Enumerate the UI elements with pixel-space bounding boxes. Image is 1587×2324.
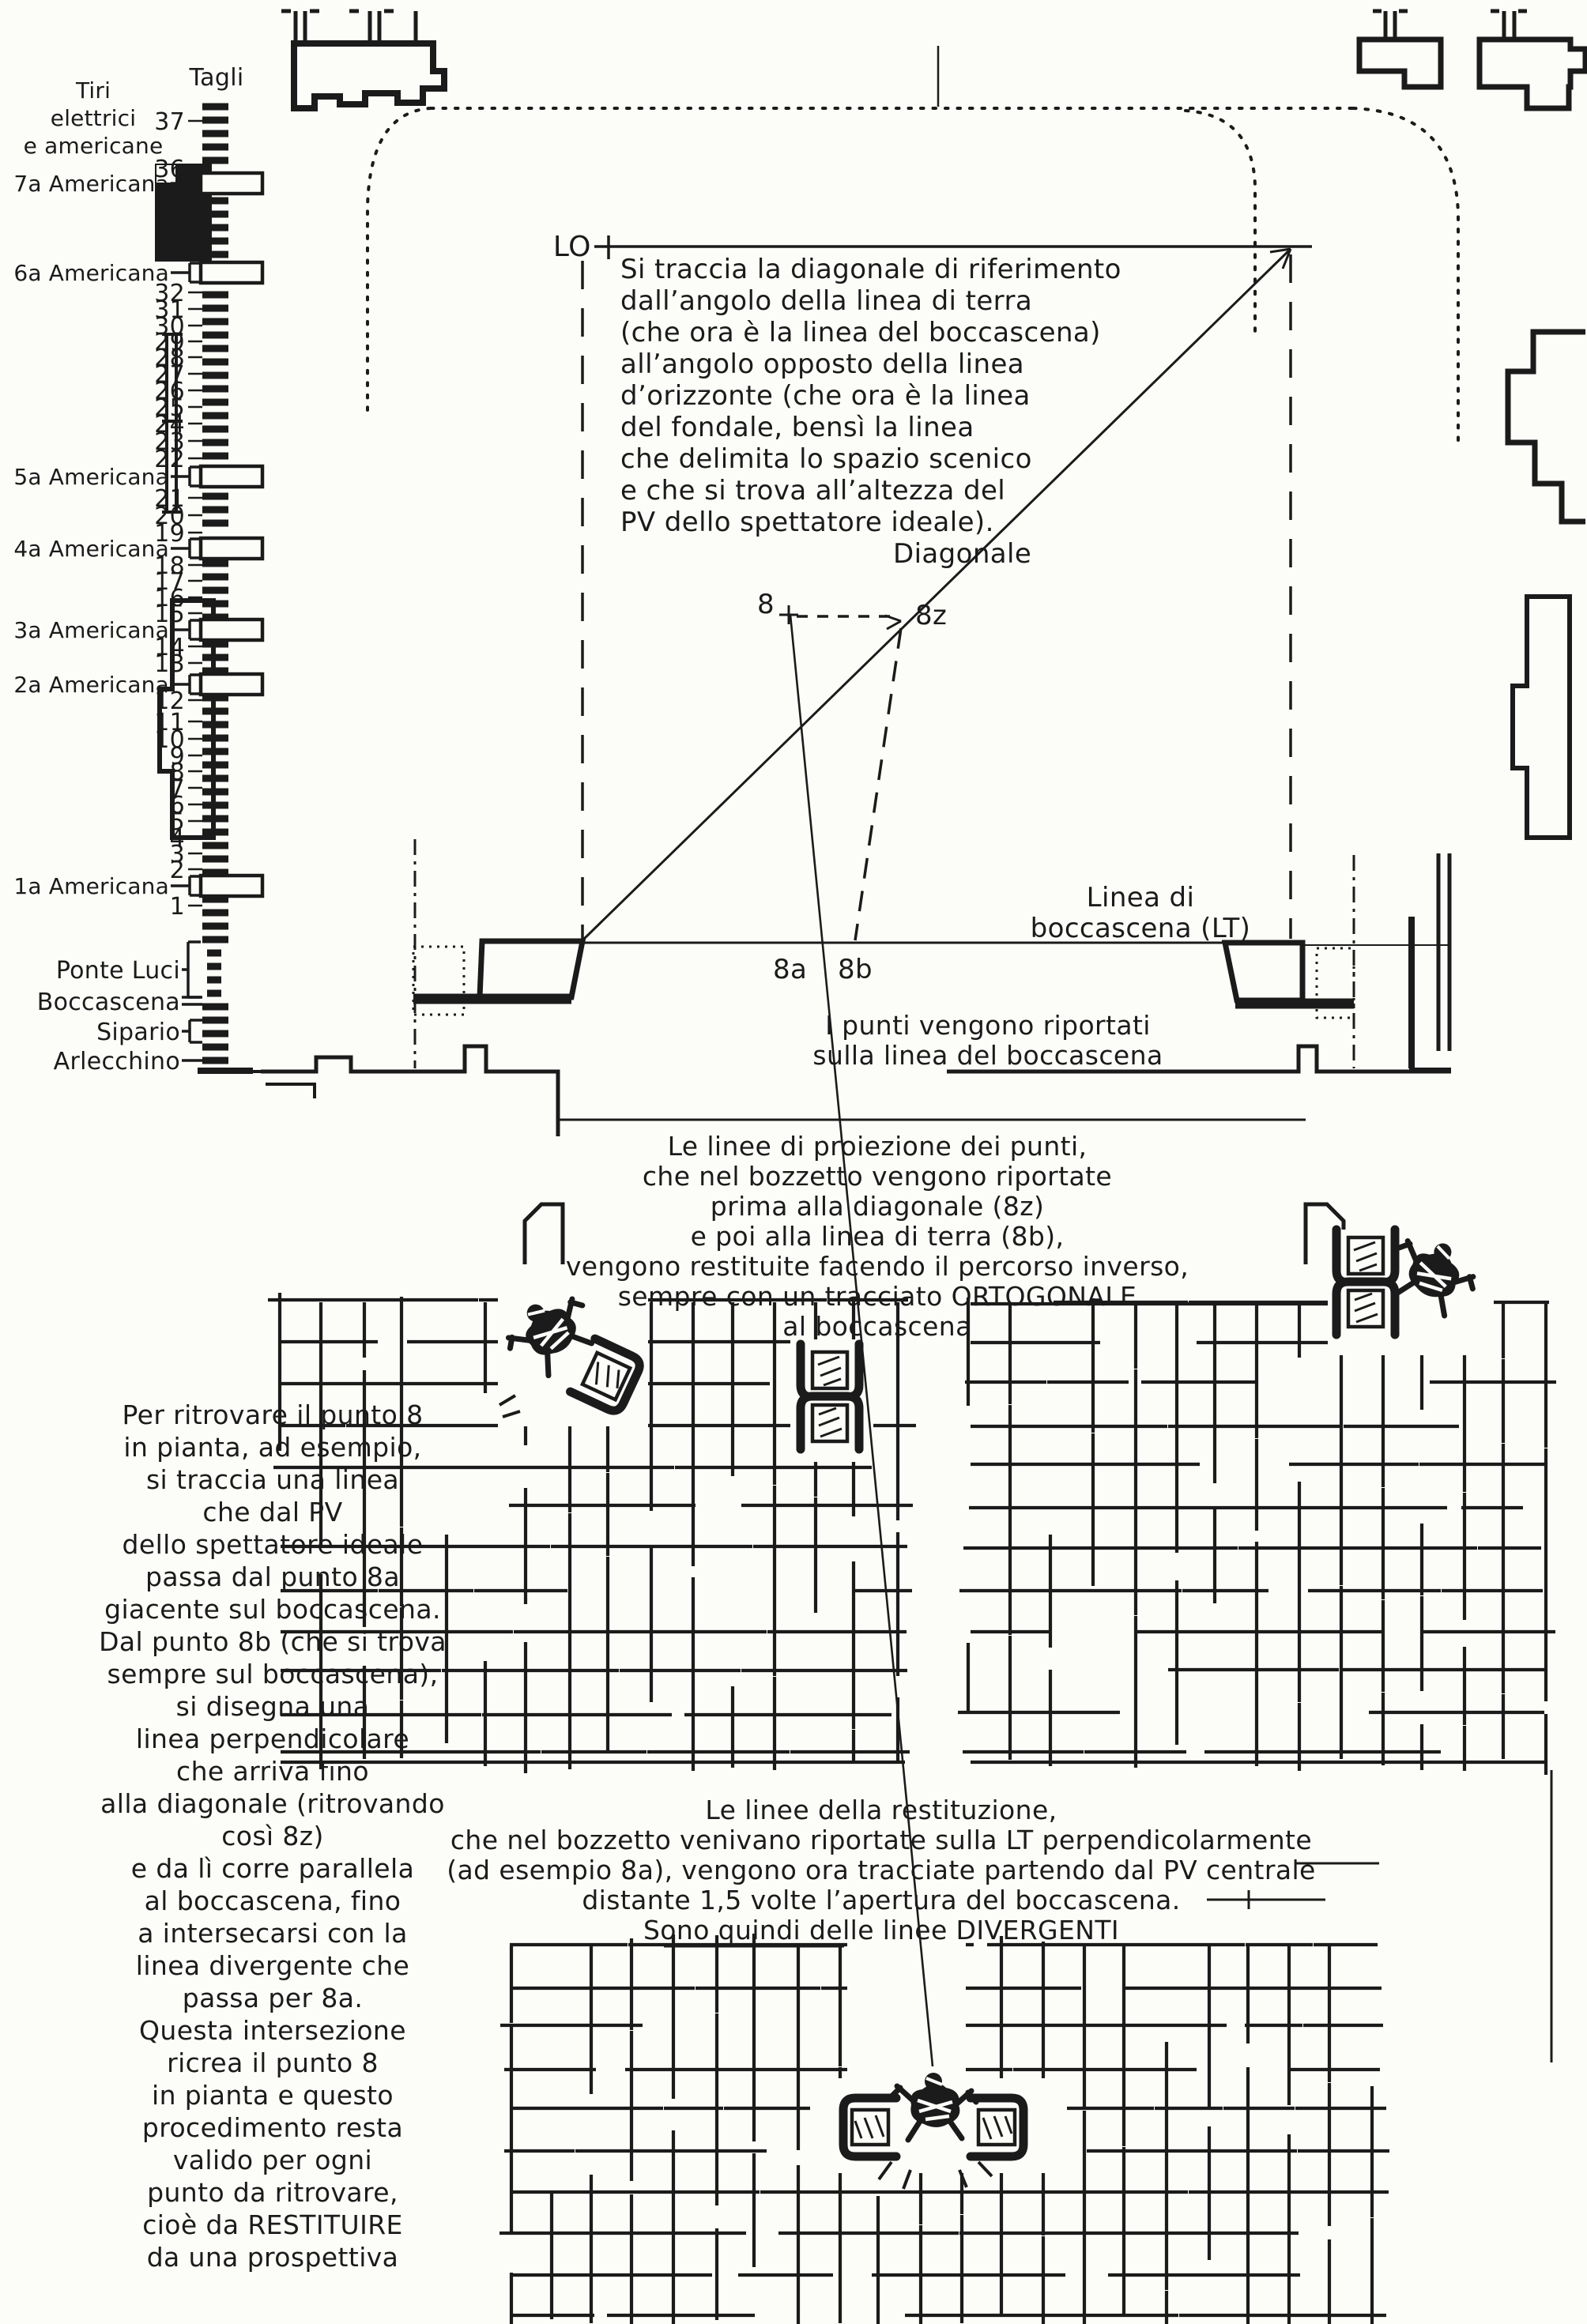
label-point-8: 8 xyxy=(757,589,775,620)
batten-americana-label: 7a Americana xyxy=(13,171,169,197)
batten-americana-label: 3a Americana xyxy=(13,617,169,643)
batten-named-label: Arlecchino xyxy=(54,1048,180,1075)
batten-named-connector xyxy=(182,942,201,997)
stage-instructions-line: all’angolo opposto della linea xyxy=(620,348,1024,380)
col-header-tagli: Tagli xyxy=(189,64,244,92)
batten-americana-label: 1a Americana xyxy=(13,873,169,899)
stage-instructions-line: (che ora è la linea del boccascena) xyxy=(620,317,1101,348)
batten-number: 2 xyxy=(170,857,185,884)
armchair xyxy=(843,2098,896,2156)
wall-top-right-block-a xyxy=(1359,40,1441,87)
note-left-column-line: cioè da RESTITUIRE xyxy=(142,2209,403,2240)
scanned-stage-design-page: 37367a Americana3534336a Americana323130… xyxy=(0,0,1587,2324)
batten-americana-box xyxy=(201,620,262,640)
armchair xyxy=(971,2098,1023,2156)
note-proiezione: Le linee di proiezione dei punti,che nel… xyxy=(566,1131,1189,1342)
note-left-column-line: al boccascena, fino xyxy=(145,1885,401,1916)
stage-instructions-line: e che si trova all’altezza del xyxy=(620,475,1005,507)
note-left-column-line: alla diagonale (ritrovando xyxy=(100,1788,445,1819)
spectator-figure-pv xyxy=(892,2073,976,2140)
note-left-column-line: dello spettatore ideale xyxy=(123,1529,424,1560)
label-linea-boccascena: Linea diboccascena (LT) xyxy=(1031,882,1251,944)
batten-number: 37 xyxy=(154,108,185,136)
stage-plan-diagram: 37367a Americana3534336a Americana323130… xyxy=(0,0,1587,2324)
batten-americana-label: 5a Americana xyxy=(13,464,169,490)
wall-right-pair xyxy=(1438,853,1449,1051)
note-left-column-line: punto da ritrovare, xyxy=(147,2177,398,2208)
spectators-and-chairs xyxy=(497,1227,1485,2189)
armchair xyxy=(801,1344,859,1397)
note-left-column-line: linea divergente che xyxy=(136,1950,409,1981)
proscenium-tower-right xyxy=(1225,943,1302,1000)
armchair xyxy=(571,1339,643,1414)
note-restituzione-line: Le linee della restituzione, xyxy=(705,1795,1057,1825)
armchair xyxy=(1336,1230,1395,1283)
note-left-column: Per ritrovare il punto 8in pianta, ad es… xyxy=(99,1399,447,2273)
note-left-column-line: Questa intersezione xyxy=(139,2015,406,2046)
stage-instructions-line: d’orizzonte (che ora è la linea xyxy=(620,380,1031,412)
wall-hook-left xyxy=(525,1204,563,1264)
wall-right-stepped xyxy=(1508,332,1585,522)
projection-dash-8z-to-8b xyxy=(855,628,901,940)
note-proiezione-line: Le linee di proiezione dei punti, xyxy=(668,1131,1088,1162)
armchair xyxy=(1336,1282,1395,1335)
point-8-cross xyxy=(779,605,798,624)
dotted-box-left xyxy=(413,947,464,1015)
wall-top-left-detail xyxy=(281,11,416,45)
theatre-walls xyxy=(155,11,1585,1264)
note-left-column-line: che arriva fino xyxy=(176,1756,369,1787)
note-proiezione-line: e poi alla linea di terra (8b), xyxy=(691,1221,1065,1252)
row-header-tiri-line: e americane xyxy=(24,133,164,159)
label-LO: LO xyxy=(553,231,591,263)
arrow-8z xyxy=(885,616,901,629)
wall-top-right-b-detail xyxy=(1491,11,1527,40)
batten-named-connector xyxy=(182,997,202,1004)
batten-number: 33 xyxy=(154,231,185,258)
note-restituzione: Le linee della restituzione,che nel bozz… xyxy=(447,1795,1316,1945)
note-left-column-line: e da lì corre parallela xyxy=(131,1853,414,1884)
label-linea-boccascena-line: Linea di xyxy=(1087,882,1195,913)
stage-instructions: Si traccia la diagonale di riferimentoda… xyxy=(620,254,1121,538)
label-point-8b: 8b xyxy=(838,954,873,985)
note-punti-riportati-line: I punti vengono riportati xyxy=(825,1010,1151,1041)
note-punti-riportati-line: sulla linea del boccascena xyxy=(812,1040,1163,1071)
note-restituzione-line: (ad esempio 8a), vengono ora tracciate p… xyxy=(447,1855,1316,1885)
wall-top-right-a-detail xyxy=(1373,11,1408,40)
note-left-column-line: si disegna una xyxy=(176,1691,370,1722)
label-diagonale: Diagonale xyxy=(893,538,1031,570)
note-left-column-line: sempre sul boccascena), xyxy=(107,1659,439,1689)
stage-instructions-line: dall’angolo della linea di terra xyxy=(620,285,1032,317)
batten-named-connector xyxy=(182,1020,202,1042)
stage-instructions-line: PV dello spettatore ideale). xyxy=(620,507,994,538)
note-restituzione-line: che nel bozzetto venivano riportate sull… xyxy=(450,1825,1312,1855)
label-linea-boccascena-line: boccascena (LT) xyxy=(1031,913,1251,944)
batten-americana-box xyxy=(201,262,262,283)
proscenium-tower-left xyxy=(480,941,582,997)
seating-grid-upper-right xyxy=(958,1298,1556,1775)
note-left-column-line: giacente sul boccascena. xyxy=(104,1594,441,1625)
note-punti-riportati: I punti vengono riportatisulla linea del… xyxy=(812,1010,1163,1071)
lower-wall-left-step xyxy=(266,1084,315,1098)
stage-instructions-line: Si traccia la diagonale di riferimento xyxy=(620,254,1121,285)
label-point-8z: 8z xyxy=(915,600,947,631)
batten-americana-box xyxy=(201,173,262,194)
batten-named-label: Boccascena xyxy=(37,989,180,1016)
batten-americana-label: 6a Americana xyxy=(13,260,169,286)
note-left-column-line: Dal punto 8b (che si trova xyxy=(99,1626,447,1657)
stage-instructions-line: del fondale, bensì la linea xyxy=(620,412,974,443)
batten-named-label: Sipario xyxy=(96,1019,180,1046)
batten-americana-box xyxy=(201,674,262,695)
stage-instructions-line: che delimita lo spazio scenico xyxy=(620,443,1032,475)
batten-americana-label: 2a Americana xyxy=(13,672,169,698)
wall-top-left-block xyxy=(294,43,444,108)
seating-grid-bottom xyxy=(499,1934,1389,2324)
lower-wall-left xyxy=(261,1046,558,1136)
note-proiezione-line: che nel bozzetto vengono riportate xyxy=(643,1161,1112,1192)
batten-number: 1 xyxy=(170,893,185,921)
note-proiezione-line: al boccascena xyxy=(782,1311,972,1342)
note-left-column-line: ricrea il punto 8 xyxy=(167,2047,379,2078)
note-proiezione-line: vengono restituite facendo il percorso i… xyxy=(566,1251,1189,1282)
note-restituzione-line: Sono quindi delle linee DIVERGENTI xyxy=(643,1915,1119,1945)
row-header-tiri: Tirielettricie americane xyxy=(24,77,164,159)
note-left-column-line: in pianta, ad esempio, xyxy=(123,1432,421,1463)
row-header-tiri-line: elettrici xyxy=(51,105,136,131)
note-left-column-line: così 8z) xyxy=(221,1821,324,1851)
label-point-8a: 8a xyxy=(773,954,807,985)
batten-named-label: Ponte Luci xyxy=(56,957,180,985)
note-proiezione-line: prima alla diagonale (8z) xyxy=(711,1191,1044,1222)
note-left-column-line: passa per 8a. xyxy=(183,1983,363,2013)
armchair xyxy=(801,1396,859,1449)
note-left-column-line: procedimento resta xyxy=(142,2112,403,2143)
note-left-column-line: si traccia una linea xyxy=(146,1464,399,1495)
note-left-column-line: a intersecarsi con la xyxy=(138,1918,407,1949)
batten-americana-label: 4a Americana xyxy=(13,536,169,562)
batten-americana-box xyxy=(201,466,262,487)
wall-top-right-block-b xyxy=(1480,40,1585,108)
wall-right-column xyxy=(1513,597,1570,838)
note-left-column-line: valido per ogni xyxy=(173,2145,372,2175)
batten-schedule: 37367a Americana3534336a Americana323130… xyxy=(13,107,262,1075)
motion-marks-pv xyxy=(879,2162,992,2189)
note-restituzione-line: distante 1,5 volte l’apertura del boccas… xyxy=(582,1885,1180,1915)
texts: Tagli Tirielettricie americane LO Si tra… xyxy=(24,64,1316,2273)
note-left-column-line: che dal PV xyxy=(202,1497,342,1527)
note-left-column-line: Per ritrovare il punto 8 xyxy=(123,1399,424,1430)
batten-americana-box xyxy=(201,538,262,559)
note-left-column-line: passa dal punto 8a xyxy=(145,1561,400,1592)
note-left-column-line: da una prospettiva xyxy=(147,2242,399,2273)
note-proiezione-line: sempre con un tracciato ORTOGONALE xyxy=(618,1281,1137,1312)
row-header-tiri-line: Tiri xyxy=(75,77,111,104)
note-left-column-line: in pianta e questo xyxy=(152,2080,394,2111)
batten-americana-box xyxy=(201,876,262,896)
note-left-column-line: linea perpendicolare xyxy=(136,1723,409,1754)
motion-marks-left xyxy=(499,1396,520,1417)
